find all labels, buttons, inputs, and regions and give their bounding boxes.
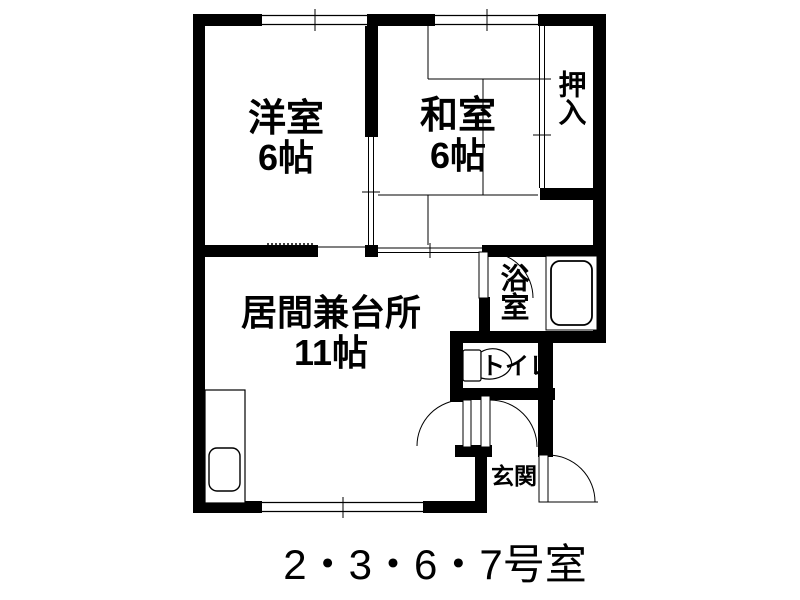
door-leaf [539, 455, 548, 502]
wall-japanese-room-bottom [482, 245, 593, 257]
label-bathroom: 浴室 [496, 263, 530, 321]
wall-entrance-left [475, 457, 487, 513]
swing-door-hall-living [417, 400, 471, 447]
label-western-room-size: 6帖 [258, 137, 314, 178]
door-swing-arc [548, 455, 595, 502]
floorplan-drawing: 洋室 6帖 和室 6帖 押入 居間兼台所 11帖 浴室 トイレ 玄関 2・3・6… [0, 0, 800, 600]
door-leaf [481, 396, 490, 447]
wall-top-middle [367, 14, 435, 26]
label-japanese-room-size: 6帖 [430, 135, 486, 176]
wall-bathroom-left-lower [479, 297, 490, 333]
sink-basin [209, 448, 240, 491]
door-leaf [479, 252, 488, 298]
toilet-tank [463, 350, 481, 381]
bathtub [546, 256, 597, 330]
bathtub-inner [551, 261, 592, 325]
entry-door [539, 455, 598, 502]
wall-closet-bottom [540, 188, 606, 200]
sliding-door-closet [533, 26, 551, 188]
label-entrance: 玄関 [491, 463, 537, 489]
window-top-japanese [435, 9, 538, 31]
label-closet: 押入 [556, 69, 587, 126]
wall-western-room-bottom [205, 245, 318, 257]
label-toilet: トイレ [481, 353, 553, 380]
wall-western-japanese-divider [365, 26, 378, 137]
caption-room-numbers: 2・3・6・7号室 [283, 541, 586, 588]
wall-left [193, 14, 205, 513]
label-living-kitchen: 居間兼台所 [241, 292, 421, 333]
door-swing-arc [417, 400, 463, 446]
door-swing-arc [490, 400, 537, 447]
kitchen-sink [205, 390, 245, 503]
label-living-kitchen-size: 11帖 [294, 332, 368, 373]
floorplan-page: 洋室 6帖 和室 6帖 押入 居間兼台所 11帖 浴室 トイレ 玄関 2・3・6… [0, 0, 800, 600]
swing-door-hall-toilet [481, 396, 537, 447]
window-top-western [262, 9, 367, 31]
label-western-room: 洋室 [248, 97, 324, 140]
wall-bathroom-bottom [450, 331, 606, 343]
sliding-door-western-japanese [362, 137, 380, 245]
sliding-door-japanese-living [378, 243, 482, 258]
label-japanese-room: 和室 [420, 94, 496, 137]
door-leaf [463, 400, 471, 447]
window-bottom-living [262, 497, 423, 518]
